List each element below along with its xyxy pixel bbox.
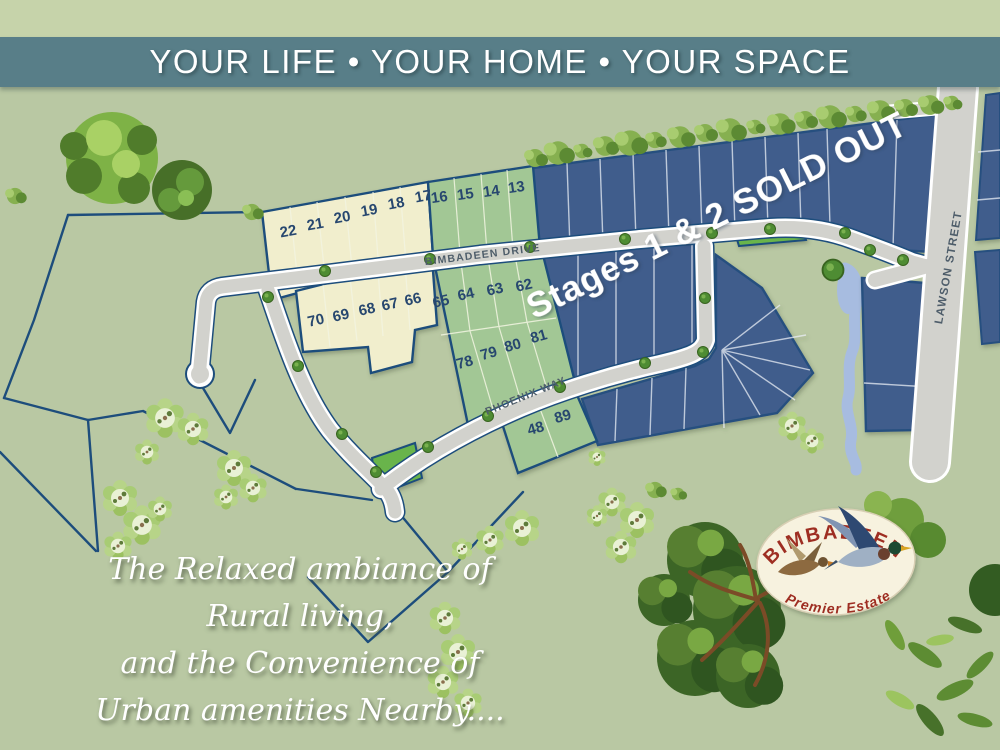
- tagline-line-4: Urban amenities Nearby....: [55, 687, 545, 734]
- estate-masterplan-flyer: BIMBADEEN DRIVE PHOENIX WAY LAWSON STREE…: [0, 0, 1000, 750]
- lot-number: 14: [482, 182, 502, 201]
- tagline-line-2: Rural living,: [55, 593, 545, 640]
- tagline-script-text: The Relaxed ambiance of Rural living, an…: [55, 546, 545, 734]
- lot-number: 15: [456, 185, 475, 204]
- tagline-line-1: The Relaxed ambiance of: [55, 546, 545, 593]
- lot-number: 13: [507, 178, 526, 197]
- lot-number: 18: [387, 194, 406, 214]
- lot-number: 21: [306, 215, 325, 235]
- tagline-line-3: and the Convenience of: [55, 640, 545, 687]
- lot-number: 22: [279, 222, 298, 242]
- lot-number: 19: [360, 201, 379, 221]
- lot-number: 16: [430, 188, 449, 207]
- top-strip: [0, 0, 1000, 37]
- banner-title: YOUR LIFE • YOUR HOME • YOUR SPACE: [149, 43, 850, 81]
- lot-number: 20: [333, 208, 352, 228]
- banner: YOUR LIFE • YOUR HOME • YOUR SPACE: [0, 37, 1000, 87]
